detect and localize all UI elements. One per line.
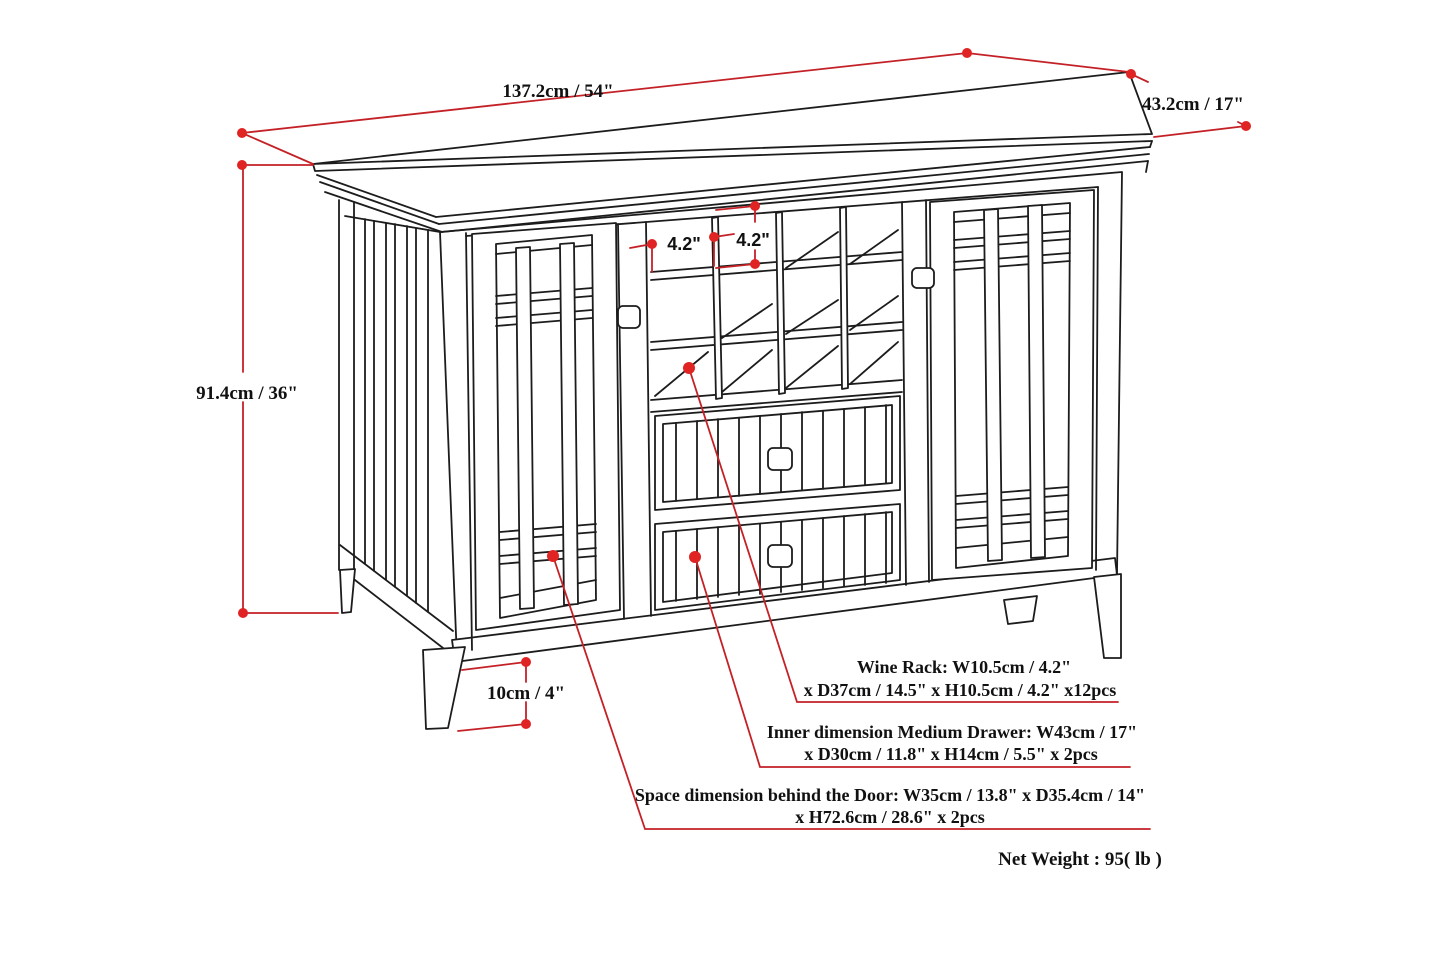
- drawer-top: [655, 396, 900, 510]
- diagram-canvas: 137.2cm / 54" 43.2cm / 17" 91.4cm / 36" …: [0, 0, 1450, 966]
- net-weight-label: Net Weight : 95( lb ): [998, 849, 1162, 870]
- right-door: [912, 190, 1094, 580]
- right-door-knob: [912, 268, 934, 288]
- dimension-leg: 10cm / 4": [458, 657, 565, 731]
- wine-rack-note-line2: x D37cm / 14.5" x H10.5cm / 4.2" x12pcs: [804, 680, 1116, 700]
- dimension-height: 91.4cm / 36": [196, 160, 338, 618]
- wine-rack-note-line1: Wine Rack: W10.5cm / 4.2": [857, 657, 1071, 677]
- door-note-line1: Space dimension behind the Door: W35cm /…: [635, 785, 1145, 805]
- left-door: [472, 223, 640, 630]
- height-dimension-label: 91.4cm / 36": [196, 383, 298, 404]
- leg-height-label: 10cm / 4": [487, 683, 565, 704]
- left-door-knob: [618, 306, 640, 328]
- depth-dimension-label: 43.2cm / 17": [1142, 94, 1244, 115]
- top-drawer-knob: [768, 448, 792, 470]
- width-dimension-label: 137.2cm / 54": [502, 81, 613, 102]
- cabinet-line-art: [313, 72, 1152, 729]
- cubby-width-label: 4.2": [667, 234, 701, 254]
- drawer-note-line1: Inner dimension Medium Drawer: W43cm / 1…: [767, 722, 1137, 742]
- sideboard-diagram: 137.2cm / 54" 43.2cm / 17" 91.4cm / 36" …: [0, 0, 1450, 966]
- drawer-note-line2: x D30cm / 11.8" x H14cm / 5.5" x 2pcs: [804, 744, 1097, 764]
- left-side-panel: [339, 200, 456, 658]
- door-note-line2: x H72.6cm / 28.6" x 2pcs: [795, 807, 984, 827]
- cubby-height-label: 4.2": [736, 230, 770, 250]
- bottom-drawer-knob: [768, 545, 792, 567]
